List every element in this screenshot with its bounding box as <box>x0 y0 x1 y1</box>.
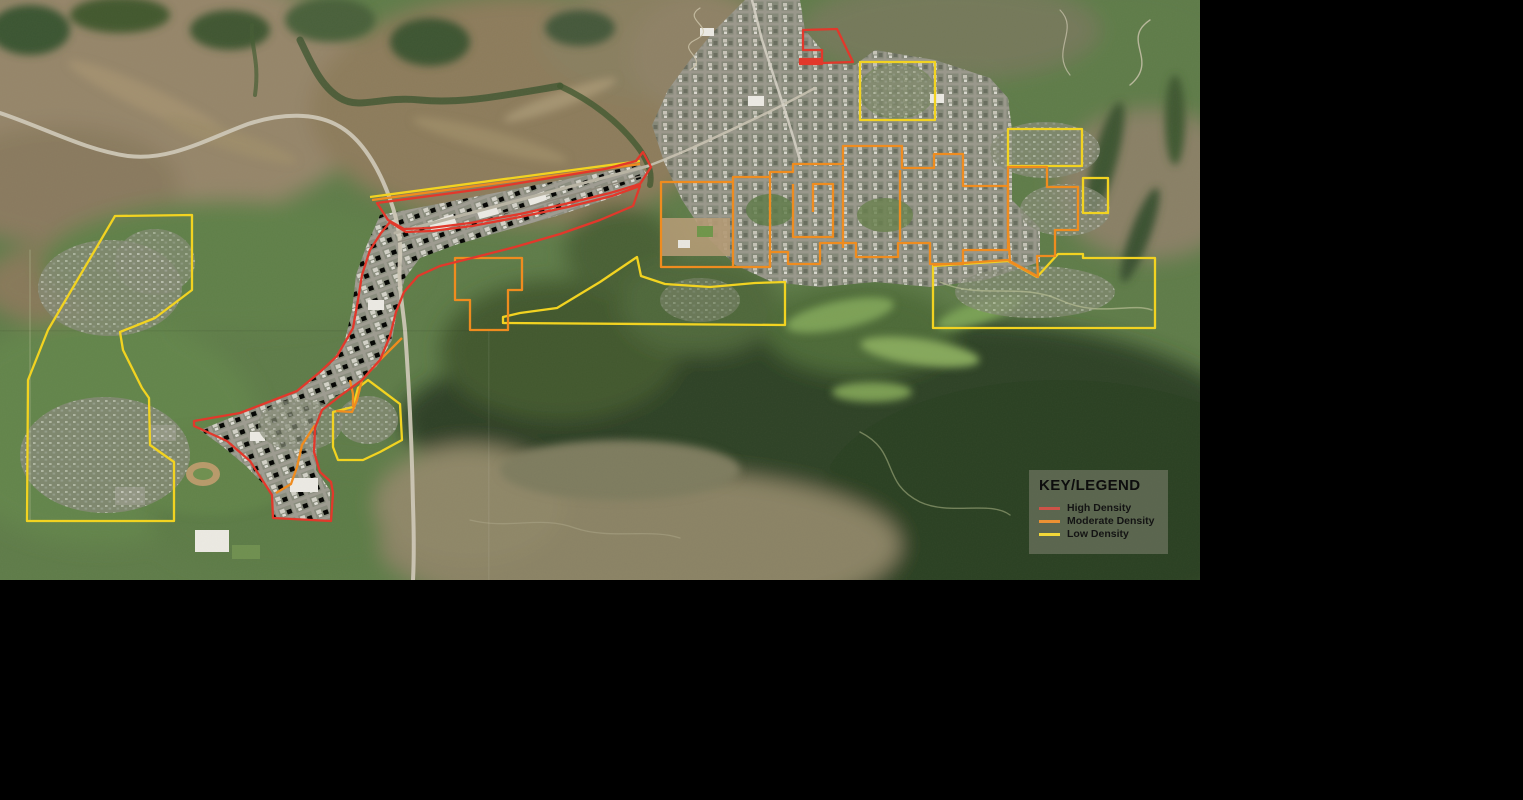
legend-panel: KEY/LEGEND High DensityModerate DensityL… <box>1029 470 1168 554</box>
high-density-swatch <box>1039 507 1060 510</box>
high-density-label: High Density <box>1067 503 1131 514</box>
zone-moderate-density <box>336 338 402 412</box>
moderate-density-label: Moderate Density <box>1067 516 1155 527</box>
zone-moderate-density <box>276 425 315 493</box>
zone-high-density <box>194 186 640 521</box>
low-density-label: Low Density <box>1067 529 1129 540</box>
legend-item-high: High Density <box>1039 502 1159 515</box>
zone-high-density <box>800 59 822 64</box>
zone-moderate-density <box>1008 167 1078 277</box>
page: KEY/LEGEND High DensityModerate DensityL… <box>0 0 1523 800</box>
zone-low-density <box>1008 129 1082 166</box>
legend-items: High DensityModerate DensityLow Density <box>1039 502 1159 541</box>
zone-low-density <box>933 254 1155 328</box>
satellite-map: KEY/LEGEND High DensityModerate DensityL… <box>0 0 1200 580</box>
moderate-density-swatch <box>1039 520 1060 523</box>
legend-title: KEY/LEGEND <box>1039 478 1159 494</box>
zone-low-density <box>27 215 192 521</box>
zone-low-density <box>370 161 640 197</box>
legend-item-moderate: Moderate Density <box>1039 515 1159 528</box>
zone-moderate-density <box>933 260 1037 276</box>
zone-moderate-density <box>661 146 1008 267</box>
zone-low-density <box>333 380 402 460</box>
zone-low-density <box>860 62 935 120</box>
density-zones <box>0 0 1200 580</box>
zone-low-density <box>1083 178 1108 213</box>
zone-moderate-density <box>350 380 353 407</box>
zone-moderate-density <box>793 184 833 237</box>
legend-item-low: Low Density <box>1039 528 1159 541</box>
zone-moderate-density <box>455 258 522 330</box>
low-density-swatch <box>1039 533 1060 536</box>
